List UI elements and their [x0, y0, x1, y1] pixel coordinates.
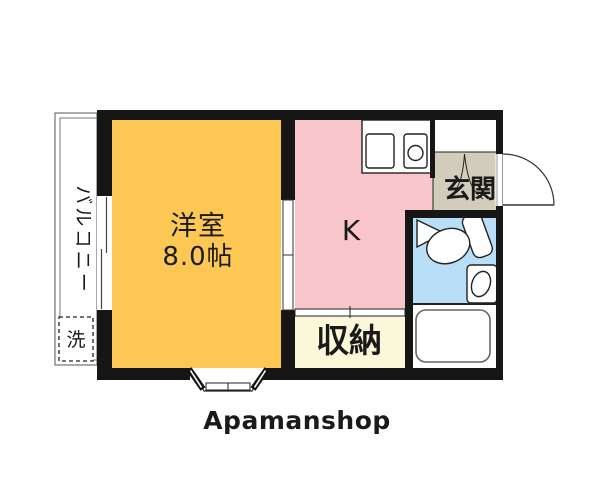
apamanshop-logo: Apamanshop	[203, 406, 391, 435]
entrance-door-arc-icon	[503, 154, 554, 205]
balcony-label: バルコニー	[72, 185, 94, 295]
living-room-size-label: 8.0帖	[162, 242, 233, 272]
storage-label: 収納	[316, 321, 382, 360]
sink-icon	[366, 134, 394, 168]
wall-right-lower	[496, 206, 503, 380]
wall-left-upper	[97, 110, 112, 196]
burner-icon	[408, 146, 423, 161]
floorplan-drawing: 洋室 8.0帖 K 収納 玄関 バルコニー 洗 Apamanshop	[0, 0, 600, 480]
wall-top	[97, 110, 503, 120]
wall-room-divider-upper	[281, 120, 295, 200]
entrance-label: 玄関	[444, 174, 496, 205]
wall-bottom-left	[97, 368, 190, 380]
kitchen-counter	[362, 120, 433, 173]
kitchen-label: K	[342, 214, 361, 247]
living-room-label: 洋室	[170, 211, 226, 242]
wall-entrance-bottom	[405, 210, 503, 218]
balcony-window	[97, 196, 112, 310]
wall-bottom-right	[262, 368, 503, 380]
wall-right-upper	[496, 110, 503, 154]
wall-room-divider-lower	[281, 310, 295, 380]
bathtub-icon	[416, 310, 490, 362]
floorplan-canvas: 洋室 8.0帖 K 収納 玄関 バルコニー 洗 Apamanshop	[0, 0, 600, 480]
bay-window	[189, 368, 267, 391]
wall-counter-stub	[430, 120, 435, 178]
washing-machine-label: 洗	[66, 329, 85, 351]
wall-kitchen-toilet	[405, 210, 413, 380]
